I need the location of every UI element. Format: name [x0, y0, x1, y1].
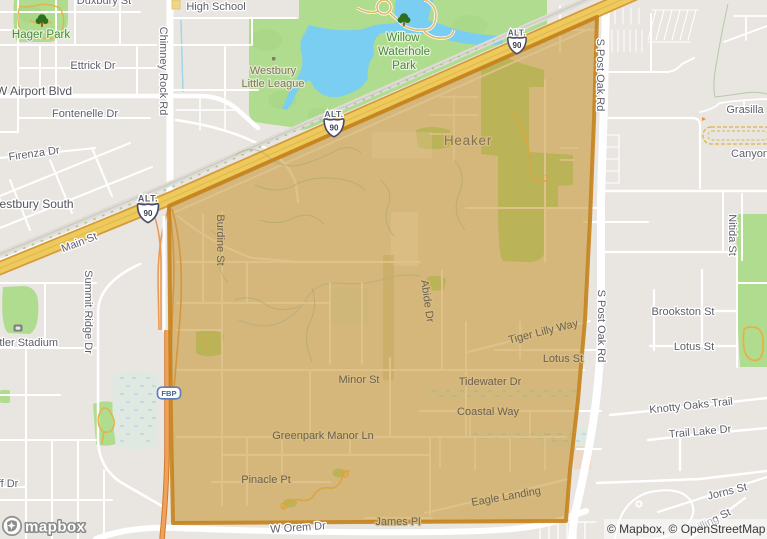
svg-text:ff Dr: ff Dr — [0, 478, 19, 490]
svg-text:Nitida St: Nitida St — [726, 214, 738, 256]
svg-text:Hager Park: Hager Park — [12, 29, 70, 41]
svg-text:Waterhole: Waterhole — [378, 46, 430, 58]
svg-text:Heaker: Heaker — [444, 133, 492, 148]
svg-text:Ettrick Dr: Ettrick Dr — [70, 60, 116, 72]
svg-text:© Mapbox, © OpenStreetMap: © Mapbox, © OpenStreetMap — [607, 522, 766, 536]
svg-text:Summit Ridge Dr: Summit Ridge Dr — [82, 270, 94, 354]
svg-text:ALT.: ALT. — [508, 28, 526, 37]
svg-text:Brookston St: Brookston St — [652, 306, 715, 318]
svg-text:90: 90 — [330, 123, 339, 132]
svg-text:Canyon: Canyon — [731, 148, 767, 160]
svg-text:Willow: Willow — [386, 32, 420, 44]
svg-text:Park: Park — [392, 60, 416, 72]
svg-text:90: 90 — [144, 209, 153, 218]
svg-text:James Pl: James Pl — [375, 516, 420, 528]
svg-text:Grasilla: Grasilla — [726, 104, 764, 116]
svg-text:Greenpark Manor Ln: Greenpark Manor Ln — [272, 430, 374, 442]
svg-text:FBP: FBP — [161, 389, 176, 398]
svg-text:Lotus St: Lotus St — [543, 353, 583, 365]
svg-text:Duxbury St: Duxbury St — [77, 0, 131, 7]
svg-text:Coastal Way: Coastal Way — [457, 406, 519, 418]
svg-text:Westbury: Westbury — [250, 65, 297, 77]
svg-text:Butler Stadium: Butler Stadium — [0, 337, 58, 349]
svg-text:ALT.: ALT. — [324, 109, 343, 119]
svg-text:Little League: Little League — [242, 78, 305, 90]
svg-text:Pinacle Pt: Pinacle Pt — [241, 474, 291, 486]
svg-text:Fontenelle Dr: Fontenelle Dr — [52, 108, 118, 120]
svg-text:Tidewater Dr: Tidewater Dr — [459, 376, 522, 388]
svg-text:W Airport Blvd: W Airport Blvd — [0, 84, 72, 98]
svg-text:S Post Oak Rd: S Post Oak Rd — [594, 39, 606, 112]
svg-text:Lotus St: Lotus St — [674, 341, 714, 353]
svg-text:Burdine St: Burdine St — [214, 214, 226, 265]
svg-text:Chimney Rock Rd: Chimney Rock Rd — [157, 27, 169, 116]
svg-text:Westbury South: Westbury South — [0, 197, 74, 211]
svg-text:High School: High School — [186, 1, 245, 13]
svg-text:ALT.: ALT. — [138, 194, 158, 204]
svg-text:Minor St: Minor St — [339, 374, 380, 386]
svg-text:90: 90 — [513, 41, 522, 50]
svg-text:S Post Oak Rd: S Post Oak Rd — [595, 290, 607, 363]
svg-text:mapbox: mapbox — [25, 519, 86, 536]
